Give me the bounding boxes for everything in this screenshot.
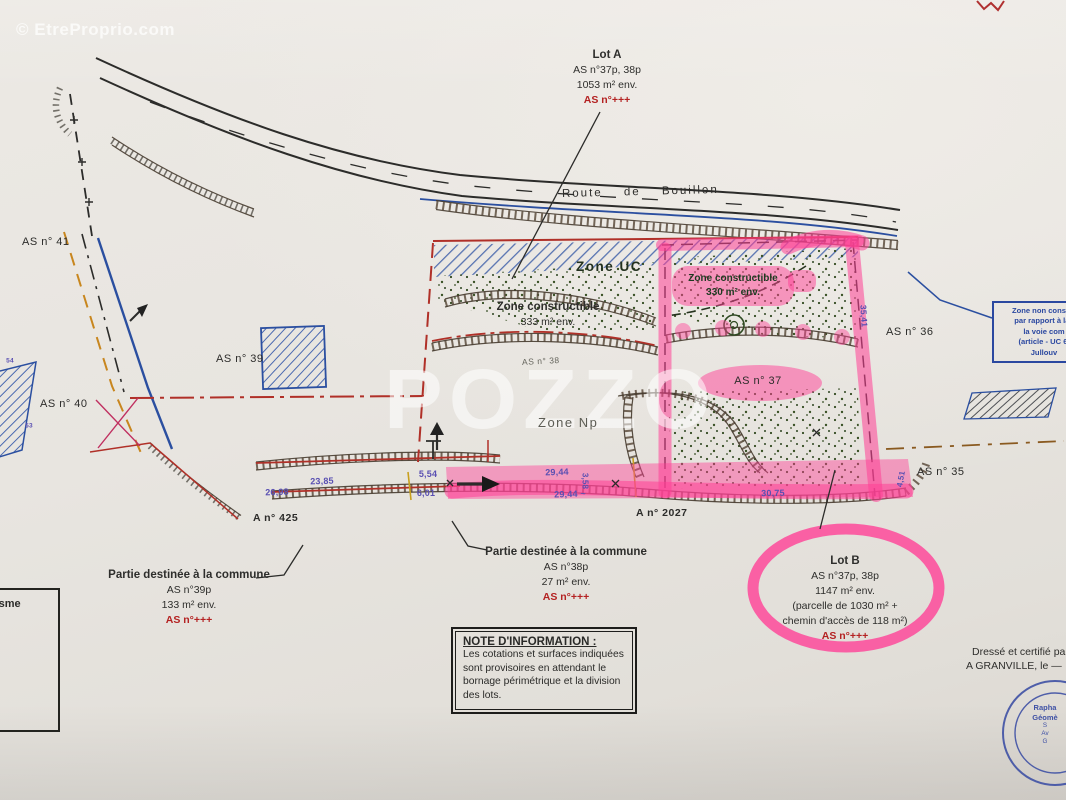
point-number-54: 54 [6,358,14,365]
left-document-box: banisme [0,588,60,732]
parcel-label-as41: AS n° 41 [22,236,70,248]
lot-a-red-ref: AS n°+++ [573,93,641,108]
measurement-3-58: 3,58 [581,473,590,489]
lot-a-area: 1053 m² env. [573,78,641,93]
parcel-label-as39: AS n° 39 [216,353,264,365]
point-number-53: 53 [25,423,33,430]
lot-a-annotation: Lot A AS n°37p, 38p 1053 m² env. AS n°++… [573,48,641,108]
road-name-label: Route de Bouillon [562,184,719,200]
measurement-29-44-a: 29,44 [545,467,569,478]
parcel-label-as40: AS n° 40 [40,398,88,410]
zone-non-constructible-note-box: Zone non constru par rapport à la l la v… [992,301,1066,363]
parcel-label-as36: AS n° 36 [886,326,934,338]
constructible-330-annotation: Zone constructible 330 m² env. [688,272,777,300]
zone-np-label: Zone Np [538,415,598,430]
zone-uc-label: Zone UC [576,259,642,274]
survey-plan-photo: .tie{stroke:#5d4e3e;stroke-width:8;strok… [0,0,1066,800]
measurement-26-98: 26,98 [265,487,289,498]
measurement-35-41: 35,41 [858,305,869,328]
measurement-5-54: 5,54 [419,469,437,479]
lot-b-annotation: Lot B AS n°37p, 38p 1147 m² env. (parcel… [783,554,908,644]
note-title: NOTE D'INFORMATION : [463,636,625,648]
measurement-30-75: 30,75 [761,488,785,498]
left-document-box-label: banisme [0,598,21,610]
commune-left-annotation: Partie destinée à la commune AS n°39p 13… [108,568,270,628]
annotation-layer: Lot A AS n°37p, 38p 1053 m² env. AS n°++… [0,0,1066,800]
parcel-label-as35: AS n° 35 [917,466,965,478]
measurement-6-01: 6,01 [417,488,435,498]
constructible-333-annotation: Zone constructible 333 m² env. [497,300,600,330]
measurement-23-85: 23,85 [310,476,334,487]
parcel-label-as37: AS n° 37 [734,375,782,387]
cadastre-label-a425: A n° 425 [253,512,298,524]
measurement-29-44-b: 29,44 ~ [554,488,586,499]
cadastre-label-a2027: A n° 2027 [636,507,688,519]
certification-block: Dressé et certifié par A GRANVILLE, le — [966,645,1066,673]
lot-a-title: Lot A [573,48,641,63]
photo-credit-watermark: © EtreProprio.com [16,20,175,40]
stamp-text: Rapha Géomè S Av G [1008,703,1066,746]
information-note-box: NOTE D'INFORMATION : Les cotations et su… [451,627,637,714]
lot-a-ref: AS n°37p, 38p [573,63,641,78]
parcel-label-as38: AS n° 38 [522,355,560,367]
lot-b-title: Lot B [783,554,908,569]
commune-center-annotation: Partie destinée à la commune AS n°38p 27… [485,545,647,605]
measurement-4-51: 4,51 [895,470,907,488]
